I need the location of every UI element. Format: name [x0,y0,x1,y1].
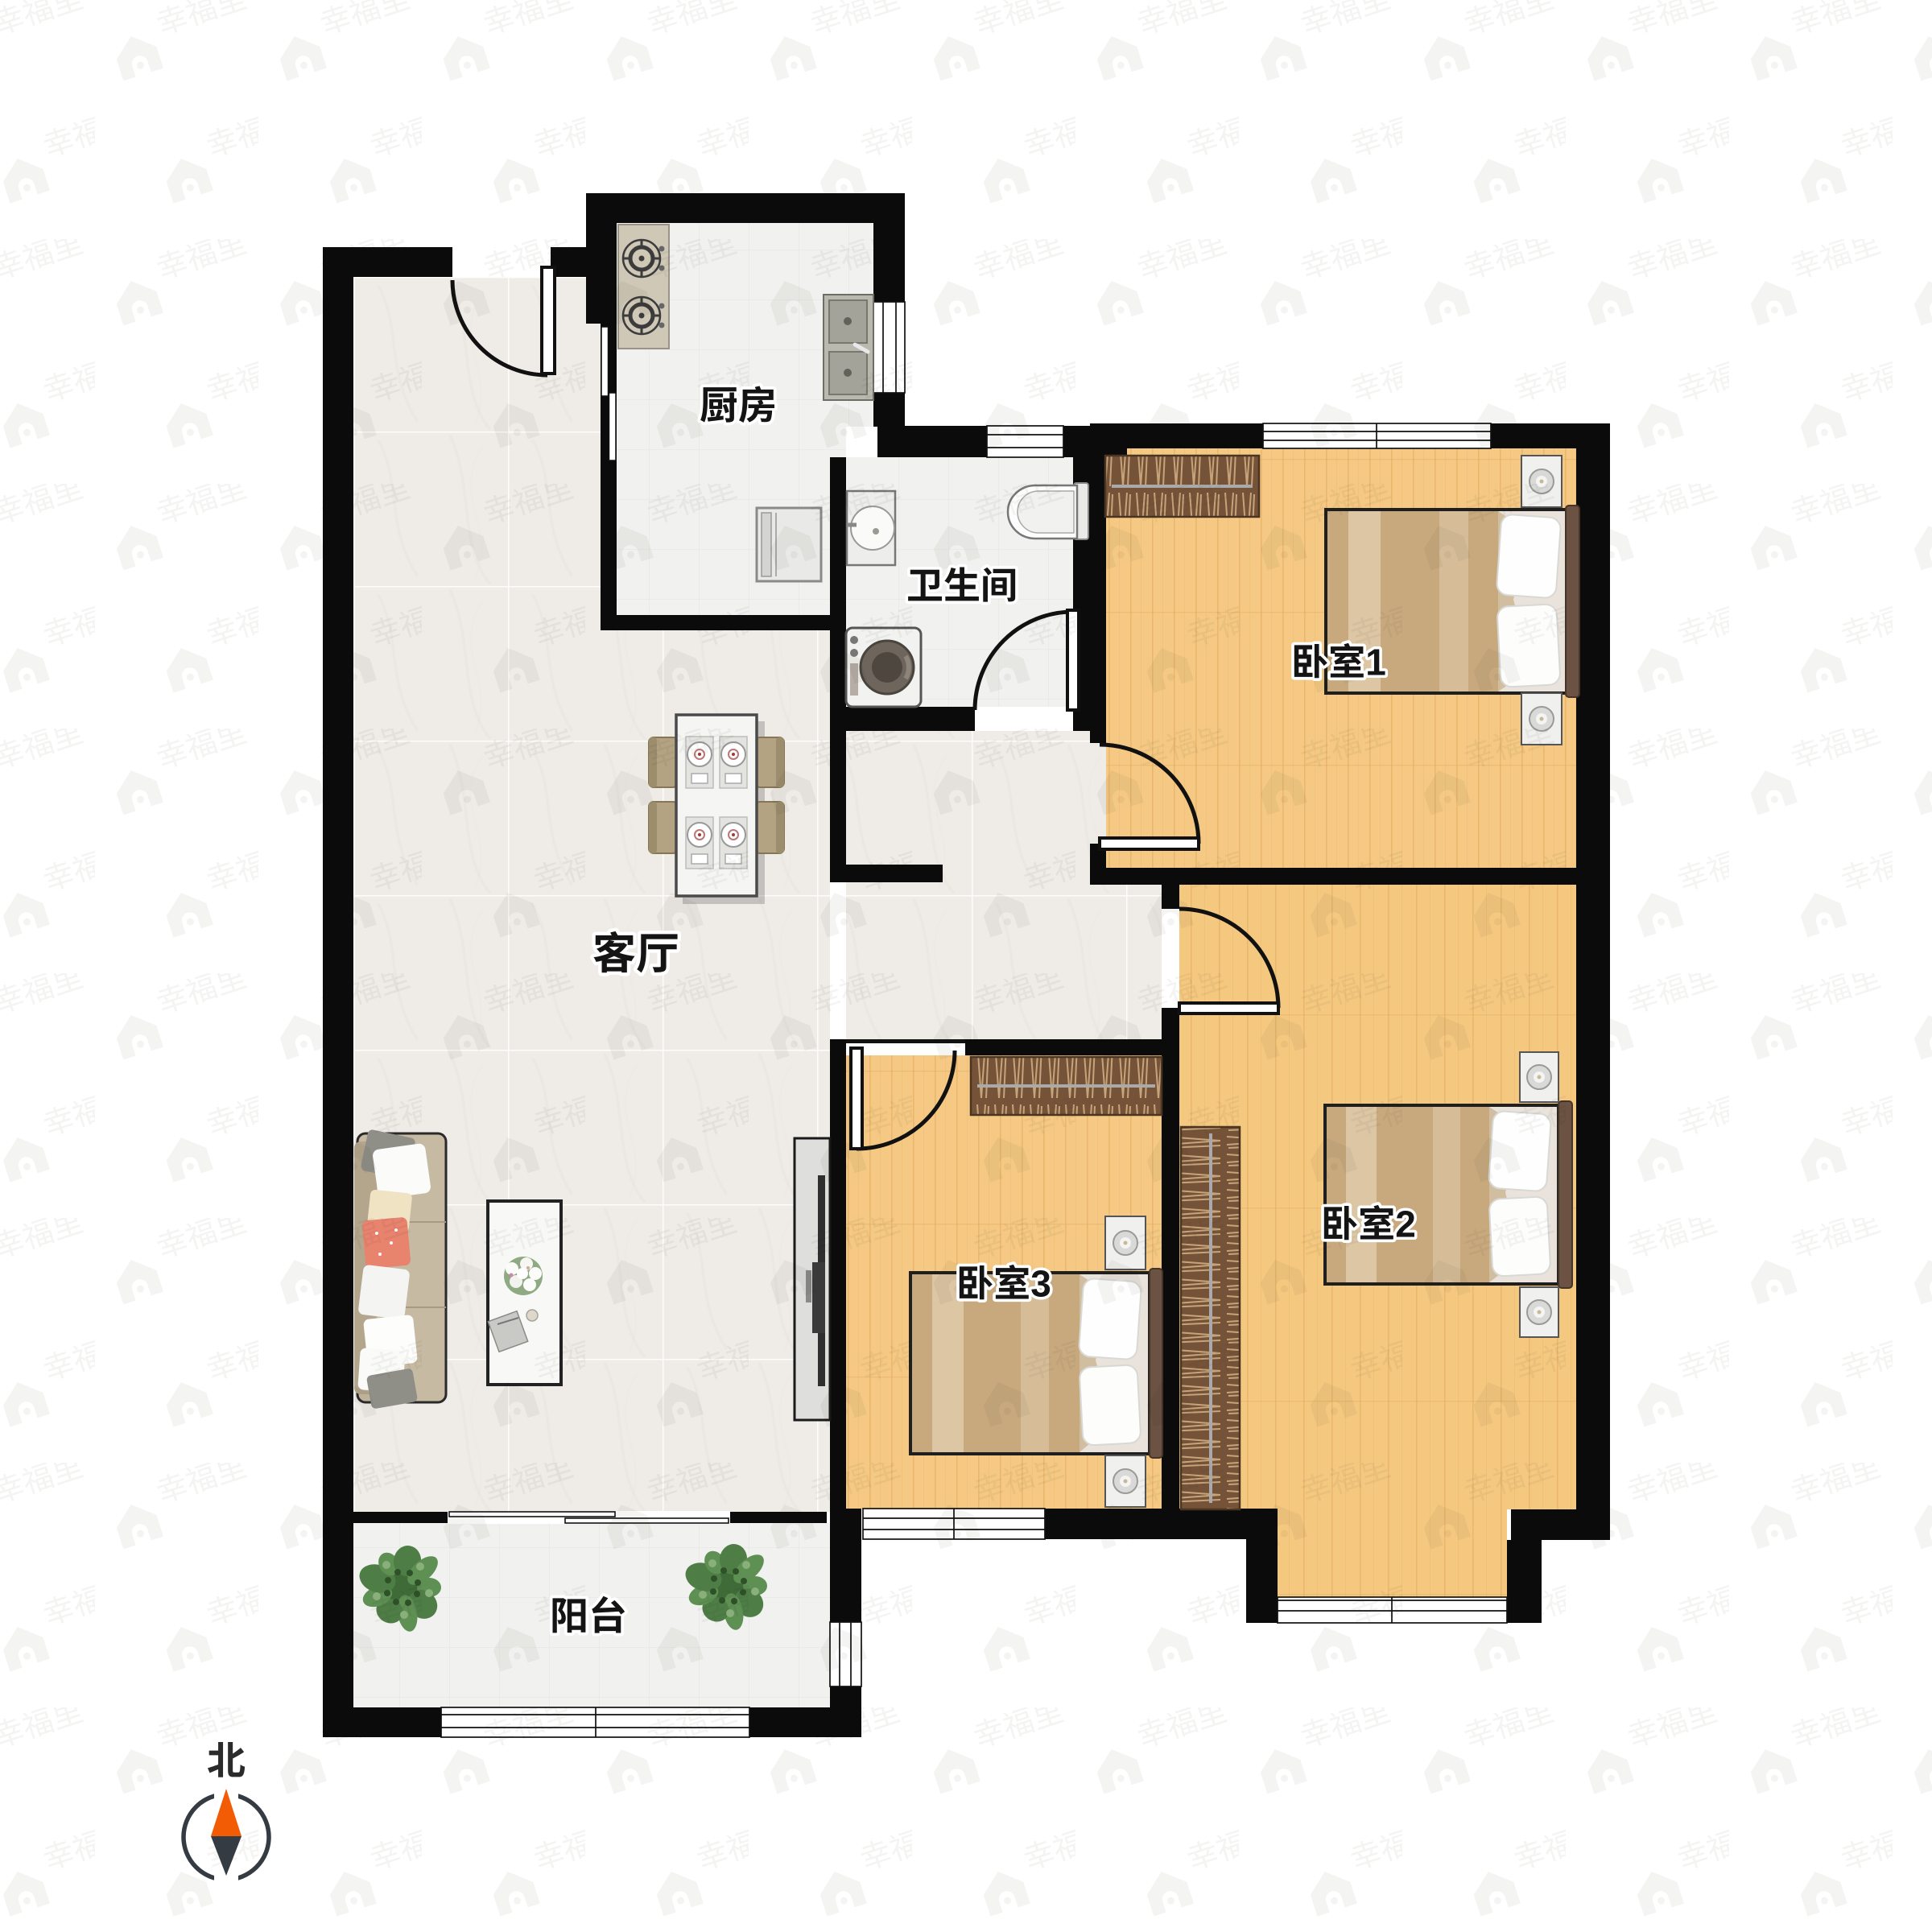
svg-text:2: 2 [1395,1203,1416,1245]
svg-text:3: 3 [1030,1263,1051,1305]
svg-text:1: 1 [1365,642,1386,683]
